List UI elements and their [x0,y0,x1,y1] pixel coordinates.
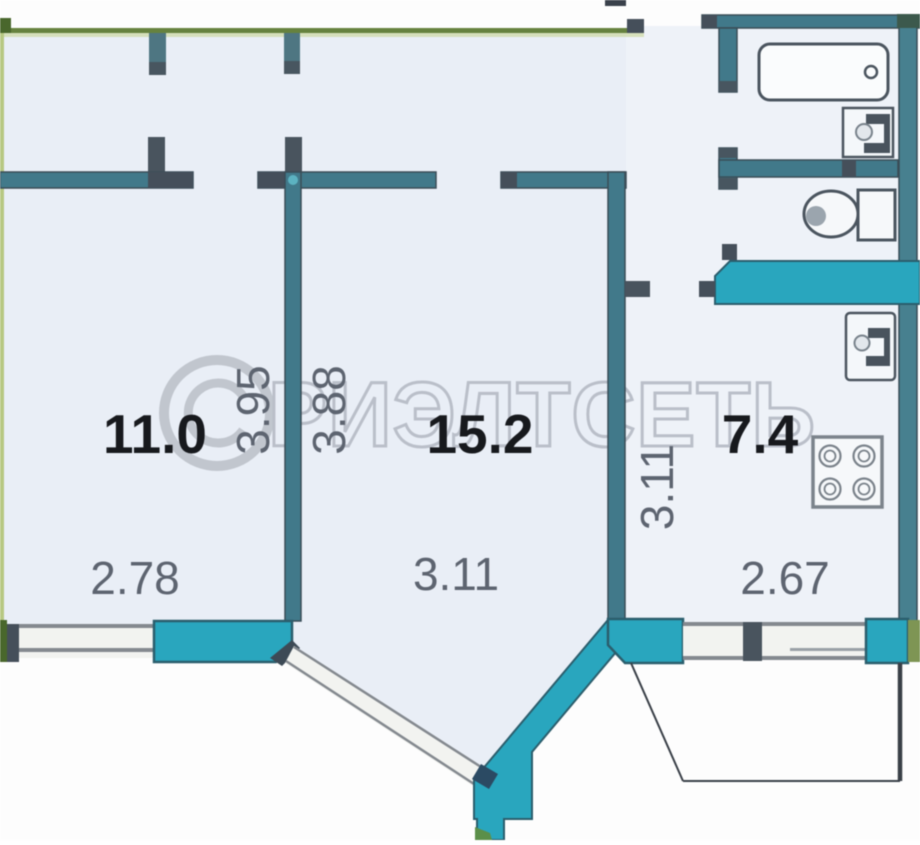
svg-text:11.0: 11.0 [103,403,207,465]
svg-text:15.2: 15.2 [426,403,533,465]
svg-text:2.67: 2.67 [740,552,830,604]
svg-text:3.11: 3.11 [631,444,683,530]
svg-text:3.95: 3.95 [227,365,279,455]
svg-text:7.4: 7.4 [722,403,799,465]
svg-text:3.88: 3.88 [303,365,355,455]
svg-text:3.11: 3.11 [413,548,499,600]
svg-text:2.78: 2.78 [90,552,180,604]
